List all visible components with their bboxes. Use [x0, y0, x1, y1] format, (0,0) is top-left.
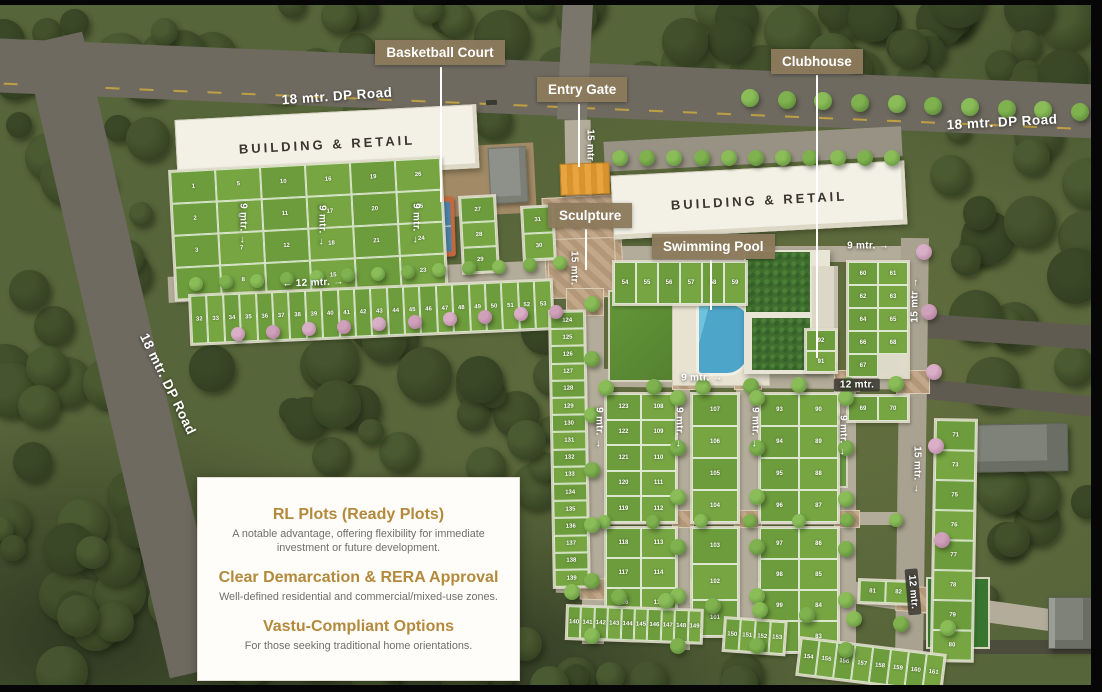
- plot-cell: 121: [606, 445, 641, 471]
- street-tree: [584, 628, 600, 644]
- plot-number: 112: [654, 506, 664, 512]
- plot-number: 29: [477, 256, 484, 262]
- plot-number: 41: [343, 310, 350, 316]
- plot-number: 93: [776, 407, 783, 413]
- plot-number: 134: [565, 489, 575, 495]
- flowering-tree: [921, 304, 937, 320]
- plot-number: 80: [949, 642, 956, 648]
- forest-tree: [306, 333, 359, 386]
- plot-number: 53: [540, 301, 547, 307]
- plot-cell: 57: [680, 262, 702, 304]
- plot-cell: 153: [769, 621, 786, 654]
- plot-number: 16: [325, 176, 332, 182]
- plot-cell: 88: [799, 458, 838, 490]
- flowering-tree: [337, 320, 351, 334]
- forest-tree: [1054, 346, 1094, 386]
- road-measure-label: 15 mtr →: [910, 277, 921, 322]
- plot-number: 23: [420, 268, 427, 274]
- plot-number: 137: [566, 541, 576, 547]
- street-tree: [553, 256, 567, 270]
- forest-tree: [26, 346, 68, 388]
- plot-number: 96: [776, 503, 783, 509]
- plot-number: 109: [653, 429, 663, 435]
- clubhouse-green-roof-b: [752, 318, 810, 370]
- plot-number: 101: [710, 615, 720, 621]
- building-retail-west-label: BUILDING & RETAIL: [239, 132, 416, 156]
- plot-number: 33: [212, 316, 219, 322]
- plot-number: 143: [609, 621, 619, 627]
- plot-number: 45: [409, 307, 416, 313]
- plot-number: 150: [727, 631, 737, 638]
- plot-number: 28: [476, 231, 483, 237]
- plot-number: 71: [952, 432, 959, 438]
- plot-cell: 70: [878, 396, 908, 421]
- plot-number: 88: [815, 471, 822, 477]
- car: [486, 100, 497, 105]
- road-measure-label: 9 mtr. →: [847, 241, 889, 252]
- plot-number: 7: [240, 245, 244, 251]
- forest-tree: [0, 535, 26, 561]
- clubhouse-label: Clubhouse: [771, 49, 863, 74]
- plot-cell: 105: [692, 458, 738, 490]
- plot-cluster-clubhouse-east-pair: 9291: [804, 328, 838, 374]
- plot-cell: 130: [552, 415, 586, 433]
- street-tree: [749, 390, 765, 406]
- plot-number: 139: [567, 575, 577, 581]
- street-tree: [924, 97, 942, 115]
- plot-cell: 78: [933, 570, 974, 601]
- forest-tree: [963, 196, 996, 229]
- street-tree: [189, 277, 203, 291]
- forest-tree: [889, 29, 928, 68]
- street-tree: [584, 573, 600, 589]
- plot-cell: 12: [263, 229, 310, 263]
- info-card-title: Clear Demarcation & RERA Approval: [212, 569, 505, 587]
- plot-number: 30: [536, 243, 543, 249]
- basketball-court-leader-line: [440, 67, 442, 202]
- plot-number: 12: [283, 243, 290, 249]
- info-card-body: Well-defined residential and commercial/…: [218, 590, 499, 605]
- plot-number: 160: [910, 667, 921, 674]
- plot-number: 68: [890, 340, 897, 346]
- road-measure-label: 9 mtr. →: [238, 203, 249, 245]
- forest-tree: [951, 245, 981, 275]
- street-tree: [752, 602, 768, 618]
- plot-number: 119: [619, 506, 629, 512]
- street-tree: [584, 296, 600, 312]
- sculpture-leader-line: [585, 229, 587, 270]
- plot-number: 131: [564, 438, 574, 444]
- plot-number: 136: [566, 524, 576, 530]
- plot-cell: 59: [724, 262, 746, 304]
- plot-cell: 132: [552, 449, 586, 467]
- plot-cell: 62: [848, 285, 878, 308]
- plot-cell: 126: [551, 346, 585, 364]
- forest-tree: [312, 437, 351, 476]
- plot-number: 91: [818, 359, 825, 365]
- road-measure-label: 9 mtr. →: [681, 373, 723, 384]
- street-tree: [432, 263, 446, 277]
- plot-number: 148: [676, 623, 686, 629]
- plot-cell: 136: [554, 518, 588, 536]
- plot-cell: 134: [553, 483, 587, 501]
- plot-number: 1: [192, 184, 196, 190]
- forest-tree: [189, 345, 235, 391]
- forest-tree: [1011, 30, 1041, 60]
- plot-cell: 94: [760, 426, 799, 458]
- road-measure-label: 9 mtr. →: [594, 407, 605, 449]
- plot-cell: 60: [848, 262, 878, 285]
- plot-cluster-east-cluster: 606162636465666867: [846, 260, 910, 379]
- plot-cell: 137: [554, 535, 588, 553]
- plot-cell: 95: [760, 458, 799, 490]
- plot-number: 133: [565, 472, 575, 478]
- plot-number: 138: [566, 558, 576, 564]
- plot-number: 145: [636, 621, 646, 627]
- plot-number: 87: [815, 503, 822, 509]
- existing-building-south: [1048, 597, 1096, 649]
- plot-number: 67: [860, 363, 867, 369]
- plot-number: 127: [563, 369, 573, 375]
- entry-gate-canopy: [559, 162, 610, 196]
- plot-number: 118: [619, 540, 629, 546]
- swimming-pool-leader-line: [710, 260, 712, 310]
- road-measure-label: ← 12 mtr. →: [282, 276, 343, 289]
- plot-number: 158: [875, 662, 886, 669]
- plot-cell: 17: [307, 194, 354, 228]
- plot-cell: 30: [523, 232, 554, 260]
- info-card: RL Plots (Ready Plots) A notable advanta…: [197, 477, 520, 681]
- street-tree: [612, 150, 628, 166]
- info-card-title: RL Plots (Ready Plots): [212, 506, 505, 524]
- plot-cell: 3: [173, 233, 220, 267]
- plot-number: 56: [666, 280, 673, 286]
- plot-cell: 97: [760, 528, 799, 559]
- plot-cluster-central-nw: 123108122109121110120111119112: [604, 392, 678, 524]
- street-tree: [884, 150, 900, 166]
- info-card-body: A notable advantage, offering flexibilit…: [218, 527, 499, 556]
- street-tree: [846, 611, 862, 627]
- street-tree: [250, 274, 264, 288]
- flowering-tree: [266, 325, 280, 339]
- plot-cluster-central-n: 107106105104: [690, 392, 740, 524]
- plot-cell: 18: [308, 226, 355, 260]
- plot-number: 75: [951, 492, 958, 498]
- plot-cell: 140: [567, 606, 581, 638]
- plot-cell: 149: [687, 610, 701, 642]
- plot-number: 26: [415, 172, 422, 178]
- plot-number: 47: [441, 306, 448, 312]
- road-measure-label: 9 mtr. →: [411, 203, 422, 245]
- plot-number: 95: [776, 471, 783, 477]
- plot-number: 97: [776, 541, 783, 547]
- forest-tree: [76, 536, 109, 569]
- plot-cell: 16: [305, 162, 352, 196]
- flowering-tree: [916, 244, 932, 260]
- forest-tree: [94, 602, 134, 642]
- street-tree: [792, 514, 806, 528]
- plot-number: 42: [360, 309, 367, 315]
- sculpture-label: Sculpture: [548, 203, 632, 228]
- plot-cell: 61: [878, 262, 908, 285]
- plot-number: 124: [562, 317, 572, 323]
- plot-cell: 103: [692, 528, 738, 564]
- plot-number: 106: [710, 439, 720, 445]
- plot-number: 159: [892, 665, 903, 672]
- plot-number: 121: [618, 455, 628, 461]
- plot-cell: 85: [799, 559, 838, 590]
- plot-number: 151: [742, 632, 752, 639]
- plot-number: 111: [654, 480, 663, 486]
- plot-number: 98: [776, 572, 783, 578]
- street-tree: [492, 260, 506, 274]
- forest-tree: [9, 270, 50, 311]
- street-tree: [838, 642, 854, 658]
- plot-cell: 117: [606, 558, 641, 588]
- street-tree: [401, 265, 415, 279]
- street-tree: [694, 150, 710, 166]
- plot-cell: 91: [806, 351, 836, 372]
- plot-number: 128: [563, 386, 573, 392]
- plot-number: 92: [818, 338, 825, 344]
- plot-number: 140: [569, 619, 579, 625]
- plot-cell: 54: [614, 262, 636, 304]
- plot-number: 161: [928, 669, 939, 676]
- plot-number: 2: [193, 216, 197, 222]
- plot-number: 21: [373, 238, 380, 244]
- plot-number: 86: [815, 541, 822, 547]
- plot-number: 34: [229, 315, 236, 321]
- plot-cell: 11: [262, 197, 309, 231]
- plot-number: 132: [565, 455, 575, 461]
- plot-cell: 93: [760, 394, 799, 426]
- forest-tree: [18, 385, 60, 427]
- plot-number: 76: [951, 522, 958, 528]
- street-tree: [888, 95, 906, 113]
- street-tree: [743, 514, 757, 528]
- plot-number: 36: [261, 314, 268, 320]
- street-tree: [564, 584, 580, 600]
- plot-number: 135: [565, 506, 575, 512]
- frame-bottom: [0, 685, 1102, 692]
- info-card-item: RL Plots (Ready Plots) A notable advanta…: [212, 499, 505, 562]
- plot-number: 154: [803, 654, 814, 661]
- plot-number: 55: [644, 280, 651, 286]
- road-measure-label: 15 mtr: [585, 129, 596, 161]
- plot-number: 89: [815, 439, 822, 445]
- plot-cell: 144: [620, 608, 634, 640]
- plot-number: 157: [857, 660, 868, 667]
- plot-number: 65: [890, 317, 897, 323]
- access-road-top: [557, 0, 593, 121]
- plot-number: 63: [890, 294, 897, 300]
- plot-cell: 125: [550, 329, 584, 347]
- plot-cell: 89: [799, 426, 838, 458]
- plot-number: 85: [815, 572, 822, 578]
- street-tree: [748, 150, 764, 166]
- forest-tree: [662, 18, 709, 65]
- street-tree: [611, 589, 627, 605]
- street-tree: [749, 539, 765, 555]
- plot-number: 61: [890, 271, 897, 277]
- forest-tree: [129, 202, 153, 226]
- plot-cell: 68: [878, 331, 908, 354]
- plot-number: 54: [622, 280, 629, 286]
- plot-cell: 146: [647, 609, 661, 641]
- plot-number: 149: [689, 623, 699, 629]
- plot-number: 99: [776, 603, 783, 609]
- street-tree: [851, 94, 869, 112]
- plot-number: 19: [370, 174, 377, 180]
- plot-number: 60: [860, 271, 867, 277]
- plot-number: 50: [491, 304, 498, 310]
- street-tree: [721, 150, 737, 166]
- flowering-tree: [928, 438, 944, 454]
- plot-number: 62: [860, 294, 867, 300]
- plot-cell: 106: [692, 426, 738, 458]
- plot-number: 113: [654, 540, 664, 546]
- street-tree: [598, 380, 614, 396]
- street-tree: [658, 593, 674, 609]
- plot-cell: 131: [552, 432, 586, 450]
- plot-cell: 65: [878, 308, 908, 331]
- plot-number: 3: [195, 248, 199, 254]
- forest-tree: [13, 442, 53, 482]
- plot-number: 125: [562, 334, 572, 340]
- plot-number: 43: [376, 309, 383, 315]
- plot-number: 46: [425, 306, 432, 312]
- plot-number: 110: [654, 455, 664, 461]
- plot-number: 69: [860, 406, 867, 412]
- plot-cell: 143: [607, 607, 621, 639]
- plot-number: 27: [474, 206, 481, 212]
- plot-cell: 119: [606, 496, 641, 522]
- plot-cell: 64: [848, 308, 878, 331]
- forest-tree: [930, 155, 971, 196]
- plot-number: 82: [895, 589, 902, 595]
- street-tree: [888, 376, 904, 392]
- flowering-tree: [408, 315, 422, 329]
- plot-cell: 127: [551, 363, 585, 381]
- plot-cell: 26: [395, 158, 442, 192]
- street-tree: [670, 638, 686, 654]
- plot-cell: 145: [634, 608, 648, 640]
- plot-number: 117: [619, 570, 629, 576]
- entry-gate-label: Entry Gate: [537, 77, 627, 102]
- plot-cell: 67: [848, 354, 878, 377]
- flowering-tree: [302, 322, 316, 336]
- street-tree: [838, 592, 854, 608]
- plot-number: 38: [294, 312, 301, 318]
- road-measure-label: 9 mtr. →: [674, 407, 685, 449]
- street-tree: [857, 150, 873, 166]
- plot-number: 144: [622, 621, 632, 627]
- plot-number: 5: [237, 181, 241, 187]
- forest-tree: [397, 347, 452, 402]
- plot-number: 57: [688, 280, 695, 286]
- plot-number: 84: [815, 603, 822, 609]
- plot-cell: 118: [606, 528, 641, 558]
- street-tree: [705, 598, 721, 614]
- street-tree: [838, 491, 854, 507]
- plot-number: 49: [474, 304, 481, 310]
- info-card-body: For those seeking traditional home orien…: [218, 639, 499, 654]
- plot-cell: 63: [878, 285, 908, 308]
- plot-cluster-central-ne: 9390948995889687: [758, 392, 840, 524]
- plot-number: 123: [618, 404, 628, 410]
- plot-number: 126: [563, 352, 573, 358]
- street-tree: [889, 513, 903, 527]
- street-tree: [830, 150, 846, 166]
- street-tree: [646, 515, 660, 529]
- plot-number: 8: [242, 277, 246, 283]
- plot-number: 31: [534, 217, 541, 223]
- plot-number: 77: [950, 552, 957, 558]
- forest-tree: [456, 356, 503, 403]
- street-tree: [838, 390, 854, 406]
- swimming-pool-label: Swimming Pool: [652, 234, 775, 259]
- plot-cell: 1: [170, 170, 217, 204]
- plot-number: 120: [618, 480, 628, 486]
- plot-number: 122: [618, 429, 628, 435]
- plot-number: 39: [310, 311, 317, 317]
- plot-cell: 109: [641, 420, 676, 446]
- plot-number: 156: [839, 658, 850, 665]
- basketball-court-label: Basketball Court: [375, 40, 505, 65]
- forest-tree: [312, 380, 361, 429]
- street-tree: [778, 91, 796, 109]
- plot-number: 10: [280, 179, 287, 185]
- frame-top: [0, 0, 1102, 5]
- plot-cell: 92: [806, 330, 836, 351]
- flowering-tree: [549, 305, 563, 319]
- plot-number: 20: [371, 206, 378, 212]
- road-measure-label: 12 mtr.: [834, 379, 880, 392]
- plot-number: 147: [663, 622, 673, 628]
- street-tree: [523, 258, 537, 272]
- clubhouse-green-roof-a: [746, 252, 810, 312]
- plot-number: 59: [732, 280, 739, 286]
- plot-cell: 122: [606, 420, 641, 446]
- plot-number: 81: [869, 588, 876, 594]
- street-tree: [893, 616, 909, 632]
- road-measure-label: 9 mtr. →: [750, 407, 761, 449]
- plot-cell: 107: [692, 394, 738, 426]
- road-measure-label: 15 mtr.: [569, 251, 580, 285]
- plot-cell: 21: [353, 224, 400, 258]
- plot-cell: 120: [606, 471, 641, 497]
- plot-number: 79: [949, 612, 956, 618]
- street-tree: [670, 539, 686, 555]
- plot-number: 44: [392, 308, 399, 314]
- plot-number: 48: [458, 305, 465, 311]
- flowering-tree: [231, 327, 245, 341]
- building-retail-east-label: BUILDING & RETAIL: [671, 188, 848, 212]
- plot-cell: 90: [799, 394, 838, 426]
- master-plan-map: BUILDING & RETAIL BUILDING & RETAIL 1510…: [0, 0, 1102, 692]
- plot-cell: 28: [461, 221, 496, 248]
- plot-number: 142: [596, 620, 606, 626]
- plot-number: 51: [507, 303, 514, 309]
- plot-number: 102: [710, 579, 720, 585]
- plot-cell: 81: [859, 580, 886, 603]
- plot-cell: 135: [553, 501, 587, 519]
- plot-number: 141: [582, 620, 592, 626]
- plot-number: 104: [710, 503, 720, 509]
- plot-number: 78: [950, 582, 957, 588]
- plot-cell: 102: [692, 564, 738, 600]
- forest-tree: [34, 306, 74, 346]
